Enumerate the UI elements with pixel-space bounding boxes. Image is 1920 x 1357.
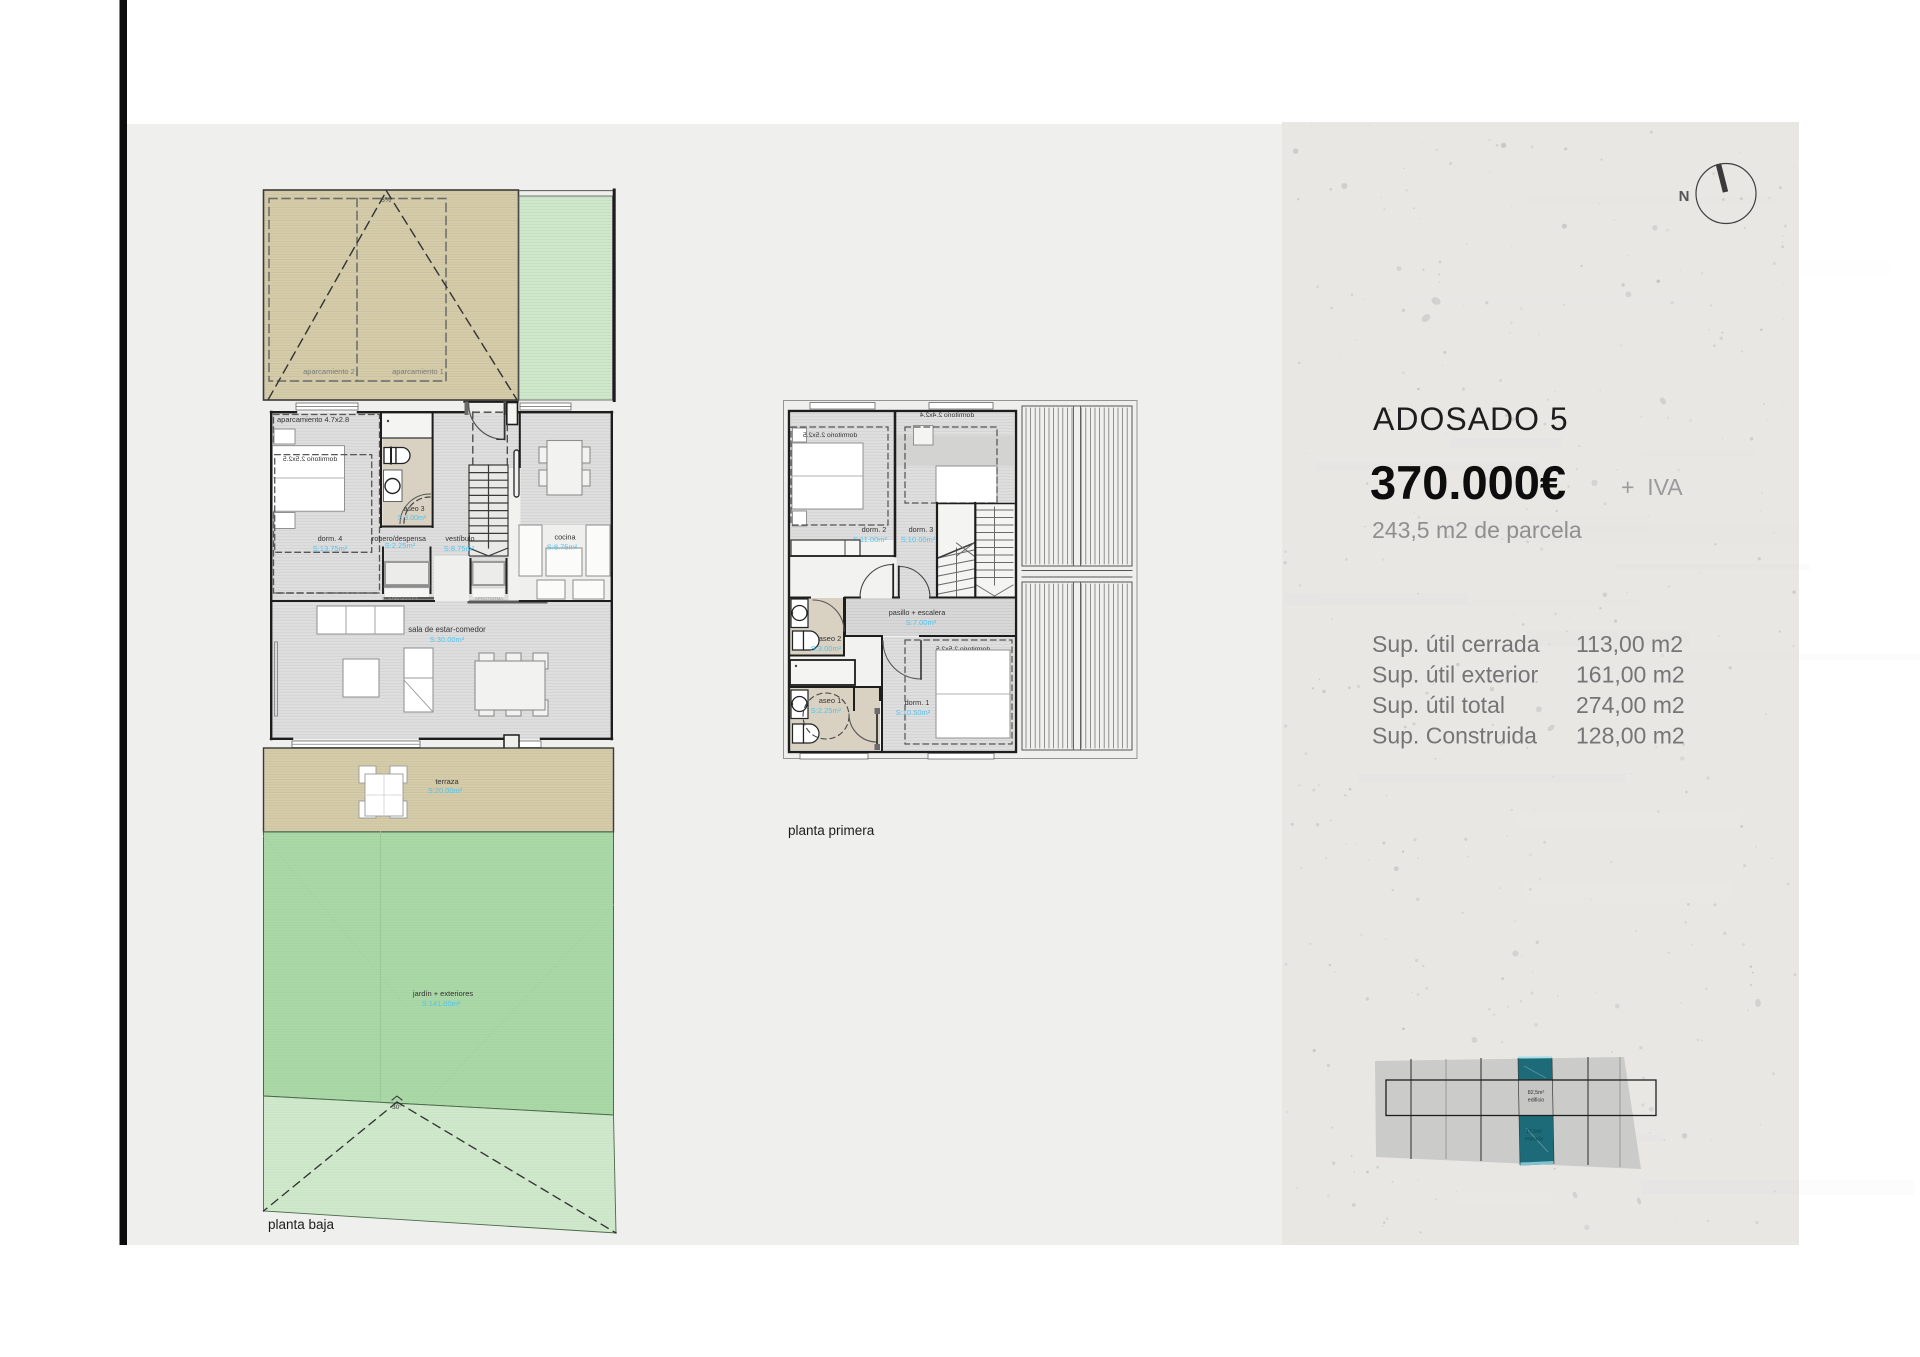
svg-text:dormitorio 2.5x2.5: dormitorio 2.5x2.5 xyxy=(803,432,858,439)
svg-text:jardín + exteriores: jardín + exteriores xyxy=(412,989,473,998)
svg-text:Sup. útil total: Sup. útil total xyxy=(1372,692,1505,718)
svg-text:ADOSADO 5: ADOSADO 5 xyxy=(1373,401,1569,437)
svg-text:dorm. 3: dorm. 3 xyxy=(909,525,934,534)
svg-text:dorm. 4: dorm. 4 xyxy=(318,534,343,543)
svg-text:S:2.25m²: S:2.25m² xyxy=(811,706,842,715)
svg-text:N: N xyxy=(1679,188,1690,205)
svg-text:pasillo + escalera: pasillo + escalera xyxy=(889,608,947,617)
svg-text:274,00 m2: 274,00 m2 xyxy=(1576,692,1685,718)
svg-text:S:141.00m²: S:141.00m² xyxy=(422,999,461,1008)
svg-text:82,5m²: 82,5m² xyxy=(1528,1090,1545,1096)
svg-text:S:10.00m²: S:10.00m² xyxy=(901,535,936,544)
svg-text:cocina: cocina xyxy=(554,533,576,542)
svg-text:Sup. útil cerrada: Sup. útil cerrada xyxy=(1372,631,1540,657)
svg-text:planta baja: planta baja xyxy=(268,1217,335,1232)
svg-text:S:10.50m²: S:10.50m² xyxy=(896,708,931,717)
svg-text:S:3.00m²: S:3.00m² xyxy=(811,644,842,653)
svg-text:113,00 m2: 113,00 m2 xyxy=(1576,631,1683,657)
svg-text:S:8.75m²: S:8.75m² xyxy=(444,544,475,553)
svg-text:30°: 30° xyxy=(392,1103,402,1111)
svg-text:dormitorio 2.5x2.5: dormitorio 2.5x2.5 xyxy=(283,456,338,463)
svg-text:entrada: entrada xyxy=(1525,1137,1543,1143)
svg-text:Sup. Construida: Sup. Construida xyxy=(1372,723,1537,749)
svg-text:dorm. 2: dorm. 2 xyxy=(862,525,887,534)
svg-text:aseo 3: aseo 3 xyxy=(403,506,424,513)
svg-text:dorm. 1: dorm. 1 xyxy=(905,698,930,707)
svg-text:aparcamiento 1: aparcamiento 1 xyxy=(392,367,444,376)
svg-text:+ IVA: + IVA xyxy=(1621,474,1683,500)
svg-text:dormitorio 2.4x2.4: dormitorio 2.4x2.4 xyxy=(920,412,975,419)
svg-text:128,00 m2: 128,00 m2 xyxy=(1576,723,1685,749)
svg-text:APROTERMA: APROTERMA xyxy=(475,596,504,601)
svg-text:S:2.25m²: S:2.25m² xyxy=(385,541,416,550)
svg-text:S:20.00m²: S:20.00m² xyxy=(428,786,463,795)
svg-text:S:8.75m²: S:8.75m² xyxy=(547,543,578,552)
svg-text:aparcamiento 4.7x2.8: aparcamiento 4.7x2.8 xyxy=(277,415,349,424)
svg-text:17,5m²: 17,5m² xyxy=(1526,1129,1543,1135)
svg-text:S:30.00m²: S:30.00m² xyxy=(430,635,465,644)
svg-text:Sup. útil exterior: Sup. útil exterior xyxy=(1372,662,1539,688)
svg-text:370.000€: 370.000€ xyxy=(1370,456,1566,509)
svg-text:161,00 m2: 161,00 m2 xyxy=(1576,662,1685,688)
svg-text:sala de estar-comedor: sala de estar-comedor xyxy=(408,625,486,634)
svg-text:edificio: edificio xyxy=(1528,1098,1545,1104)
svg-text:S:7.00m²: S:7.00m² xyxy=(906,618,937,627)
svg-text:aseo 2: aseo 2 xyxy=(819,634,842,643)
svg-text:planta primera: planta primera xyxy=(788,823,875,838)
svg-text:S:13.75m²: S:13.75m² xyxy=(313,544,348,553)
svg-text:S:3.00m²: S:3.00m² xyxy=(398,515,427,522)
svg-text:terraza: terraza xyxy=(435,777,459,786)
svg-text:vestíbulo: vestíbulo xyxy=(445,534,474,543)
svg-text:aseo 1: aseo 1 xyxy=(819,696,842,705)
svg-text:aparcamiento 2: aparcamiento 2 xyxy=(303,367,355,376)
svg-text:243,5 m2 de parcela: 243,5 m2 de parcela xyxy=(1372,517,1582,543)
svg-text:3%: 3% xyxy=(381,197,391,204)
